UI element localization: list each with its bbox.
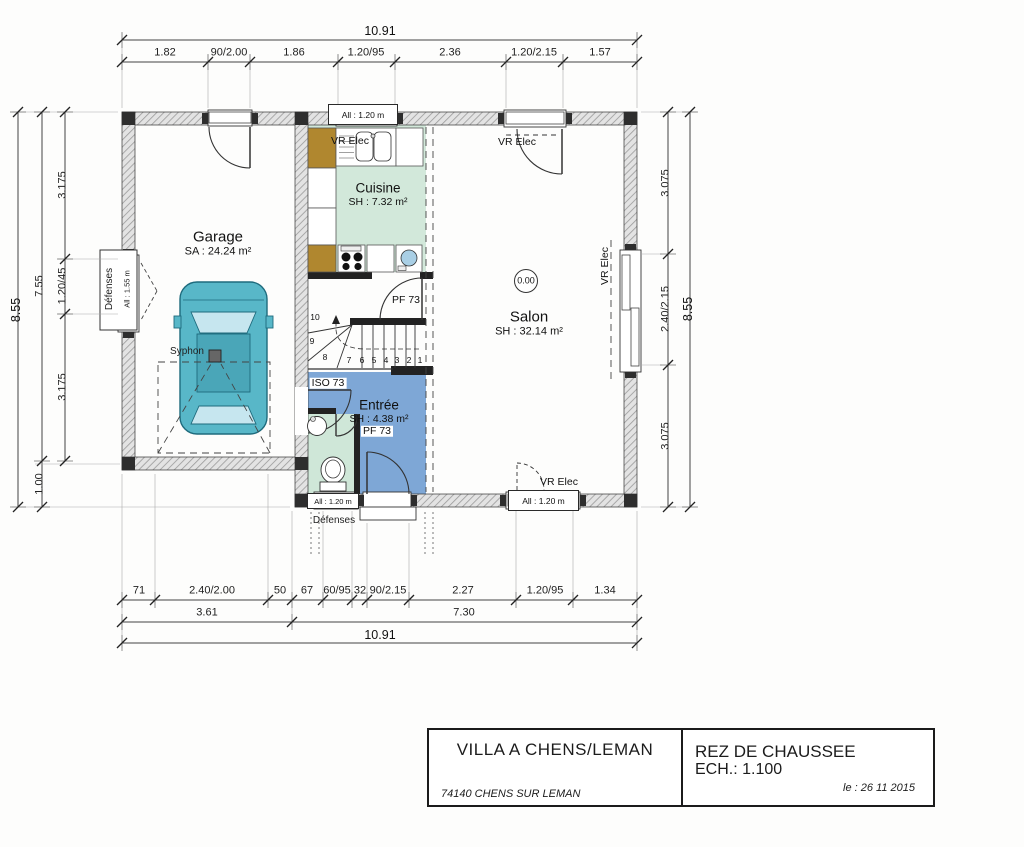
dimension-label: 3.075 xyxy=(661,169,672,197)
room-name-salon: Salon xyxy=(510,310,548,325)
stair-step-number: 5 xyxy=(372,356,377,365)
defenses-label-left: Défenses xyxy=(105,268,115,310)
stair-step-number: 2 xyxy=(407,356,412,365)
dimension-label: 2.27 xyxy=(452,586,473,597)
stair-step-number: 3 xyxy=(395,356,400,365)
dimension-label: 1.34 xyxy=(594,586,615,597)
dimension-label: 2.36 xyxy=(439,48,460,59)
stair-step-number: 4 xyxy=(384,356,389,365)
dimension-label: 8.55 xyxy=(682,297,695,321)
dimension-label: 1.57 xyxy=(589,48,610,59)
car xyxy=(174,282,273,434)
sheet-scale: ECH.: 1.100 xyxy=(695,761,782,779)
stair-step-number: 9 xyxy=(310,337,315,346)
title-block: VILLA A CHENS/LEMAN 74140 CHENS SUR LEMA… xyxy=(427,728,935,807)
dimension-label: 2.40/2.00 xyxy=(189,586,235,597)
project-address: 74140 CHENS SUR LEMAN xyxy=(441,788,580,800)
stair-step-number: 10 xyxy=(310,313,319,322)
room-area-garage: SA : 24.24 m² xyxy=(185,247,252,258)
room-area-salon: SH : 32.14 m² xyxy=(495,327,563,338)
vr-elec-label-kitchen: VR Elec xyxy=(331,136,369,147)
vr-elec-label-salon-top: VR Elec xyxy=(498,137,536,148)
dimension-label: 1.86 xyxy=(283,48,304,59)
dimension-label: 2.40/2.15 xyxy=(661,286,672,332)
dimension-label: 32 xyxy=(354,586,366,597)
dimension-label: 1.20/95 xyxy=(348,48,385,59)
floor-plan-page: 10.91 1.82 90/2.00 1.86 1.20/95 2.36 1.2… xyxy=(0,0,1024,847)
door-label-iso73: ISO 73 xyxy=(310,378,347,389)
vr-elec-label-salon-right: VR Elec xyxy=(600,247,611,285)
dimension-label: 8.55 xyxy=(10,298,23,322)
room-name-entree: Entrée xyxy=(359,398,399,412)
dimension-label: 50 xyxy=(274,586,286,597)
dimension-label: 71 xyxy=(133,586,145,597)
vr-elec-label-salon-bottom: VR Elec xyxy=(540,477,578,488)
dimension-label: 67 xyxy=(301,586,313,597)
dimension-label: 90/2.00 xyxy=(211,48,248,59)
dimension-label: 1.82 xyxy=(154,48,175,59)
dimension-label: 10.91 xyxy=(364,629,395,642)
dimension-label: 60/95 xyxy=(323,586,351,597)
sill-height-box-salon: All : 1.20 m xyxy=(508,490,579,511)
dimension-label: 3.175 xyxy=(58,171,69,199)
dimension-label: 3.61 xyxy=(196,608,217,619)
room-area-entree: SH : 4.38 m² xyxy=(350,414,409,425)
sheet-name: REZ DE CHAUSSEE xyxy=(695,742,856,762)
stair-step-number: 7 xyxy=(347,356,352,365)
title-block-divider xyxy=(681,730,683,805)
dimension-label: 7.55 xyxy=(35,275,46,296)
dimension-label: 10.91 xyxy=(364,25,395,38)
door-label-pf73-entree: PF 73 xyxy=(361,426,393,437)
stair-step-number: 6 xyxy=(360,356,365,365)
room-name-cuisine: Cuisine xyxy=(355,181,400,195)
dimension-label: 90/2.15 xyxy=(370,586,407,597)
project-title: VILLA A CHENS/LEMAN xyxy=(457,740,654,760)
dimension-label: 7.30 xyxy=(453,608,474,619)
room-area-cuisine: SH : 7.32 m² xyxy=(349,197,408,208)
sill-height-box-wc: All : 1.20 m xyxy=(307,493,359,509)
defenses-label-bottom: Défenses xyxy=(313,516,355,526)
dimension-label: 1.20/95 xyxy=(527,586,564,597)
sill-height-label-left: All : 1.55 m xyxy=(123,270,131,308)
sheet-date: le : 26 11 2015 xyxy=(843,782,915,794)
dimension-label: 3.175 xyxy=(58,373,69,401)
dimension-label: 1.00 xyxy=(35,473,46,494)
syphon-label: Syphon xyxy=(170,347,204,357)
level-marker-value: 0.00 xyxy=(517,277,535,286)
stair-step-number: 8 xyxy=(323,353,328,362)
dimension-label: 3.075 xyxy=(661,422,672,450)
stair-step-number: 1 xyxy=(418,356,423,365)
dimension-label: 1.20/45 xyxy=(58,268,69,305)
door-label-pf73-hall: PF 73 xyxy=(392,295,420,306)
sill-height-box-kitchen: All : 1.20 m xyxy=(328,104,398,125)
room-name-garage: Garage xyxy=(193,230,243,245)
floor-plan-drawing xyxy=(0,0,1024,847)
dimension-label: 1.20/2.15 xyxy=(511,48,557,59)
